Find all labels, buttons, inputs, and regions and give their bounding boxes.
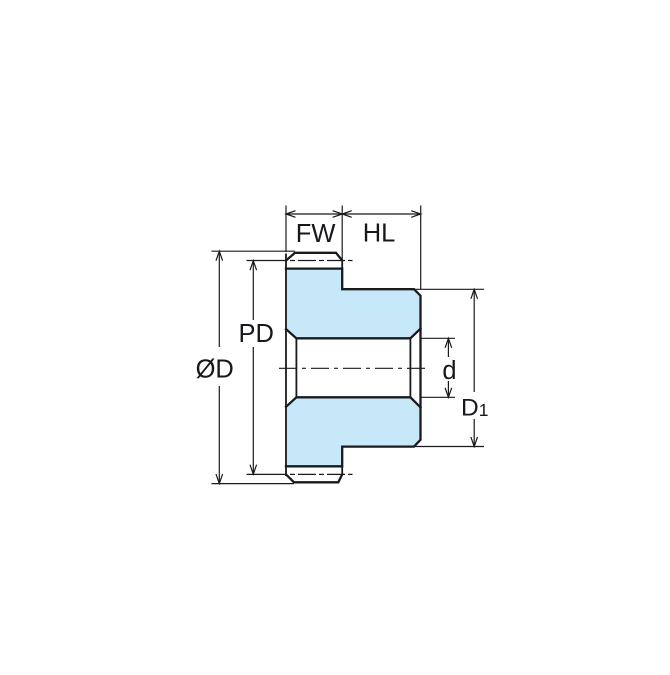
- svg-text:ØD: ØD: [196, 356, 234, 384]
- svg-text:FW: FW: [296, 220, 336, 248]
- svg-text:d: d: [442, 357, 456, 385]
- svg-text:HL: HL: [363, 220, 396, 248]
- svg-text:PD: PD: [238, 320, 273, 348]
